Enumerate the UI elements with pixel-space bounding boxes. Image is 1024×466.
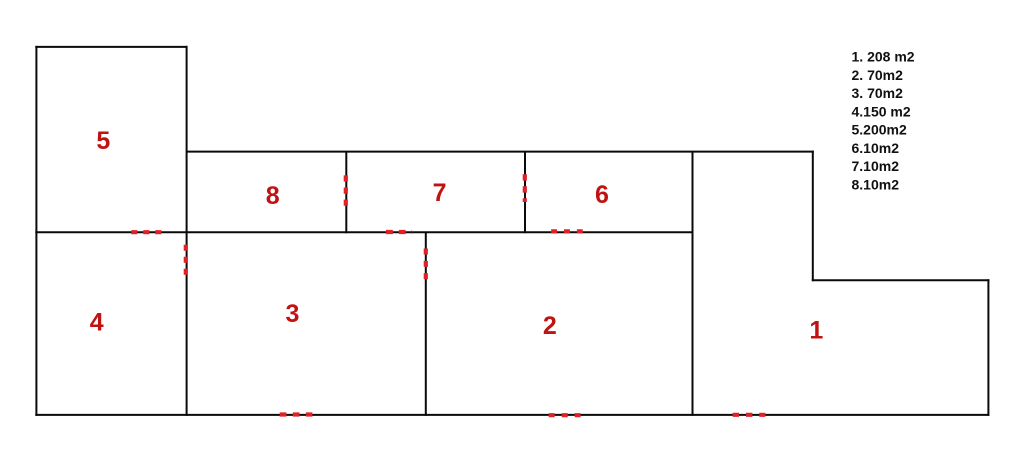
svg-text:5.200m2: 5.200m2 <box>852 122 907 138</box>
svg-text:2: 2 <box>543 312 557 340</box>
svg-text:5: 5 <box>96 127 110 155</box>
svg-text:8.10m2: 8.10m2 <box>852 176 900 192</box>
svg-text:4.150 m2: 4.150 m2 <box>852 103 911 119</box>
svg-text:2. 70m2: 2. 70m2 <box>852 67 904 83</box>
svg-text:1: 1 <box>809 316 823 344</box>
svg-text:7.10m2: 7.10m2 <box>852 158 900 174</box>
svg-text:4: 4 <box>90 308 104 336</box>
svg-text:8: 8 <box>266 182 280 210</box>
svg-text:7: 7 <box>433 179 447 207</box>
svg-text:1. 208 m2: 1. 208 m2 <box>852 49 915 65</box>
svg-text:6.10m2: 6.10m2 <box>852 140 900 156</box>
svg-text:3: 3 <box>285 300 299 328</box>
svg-text:3. 70m2: 3. 70m2 <box>852 85 904 101</box>
svg-text:6: 6 <box>595 181 609 209</box>
